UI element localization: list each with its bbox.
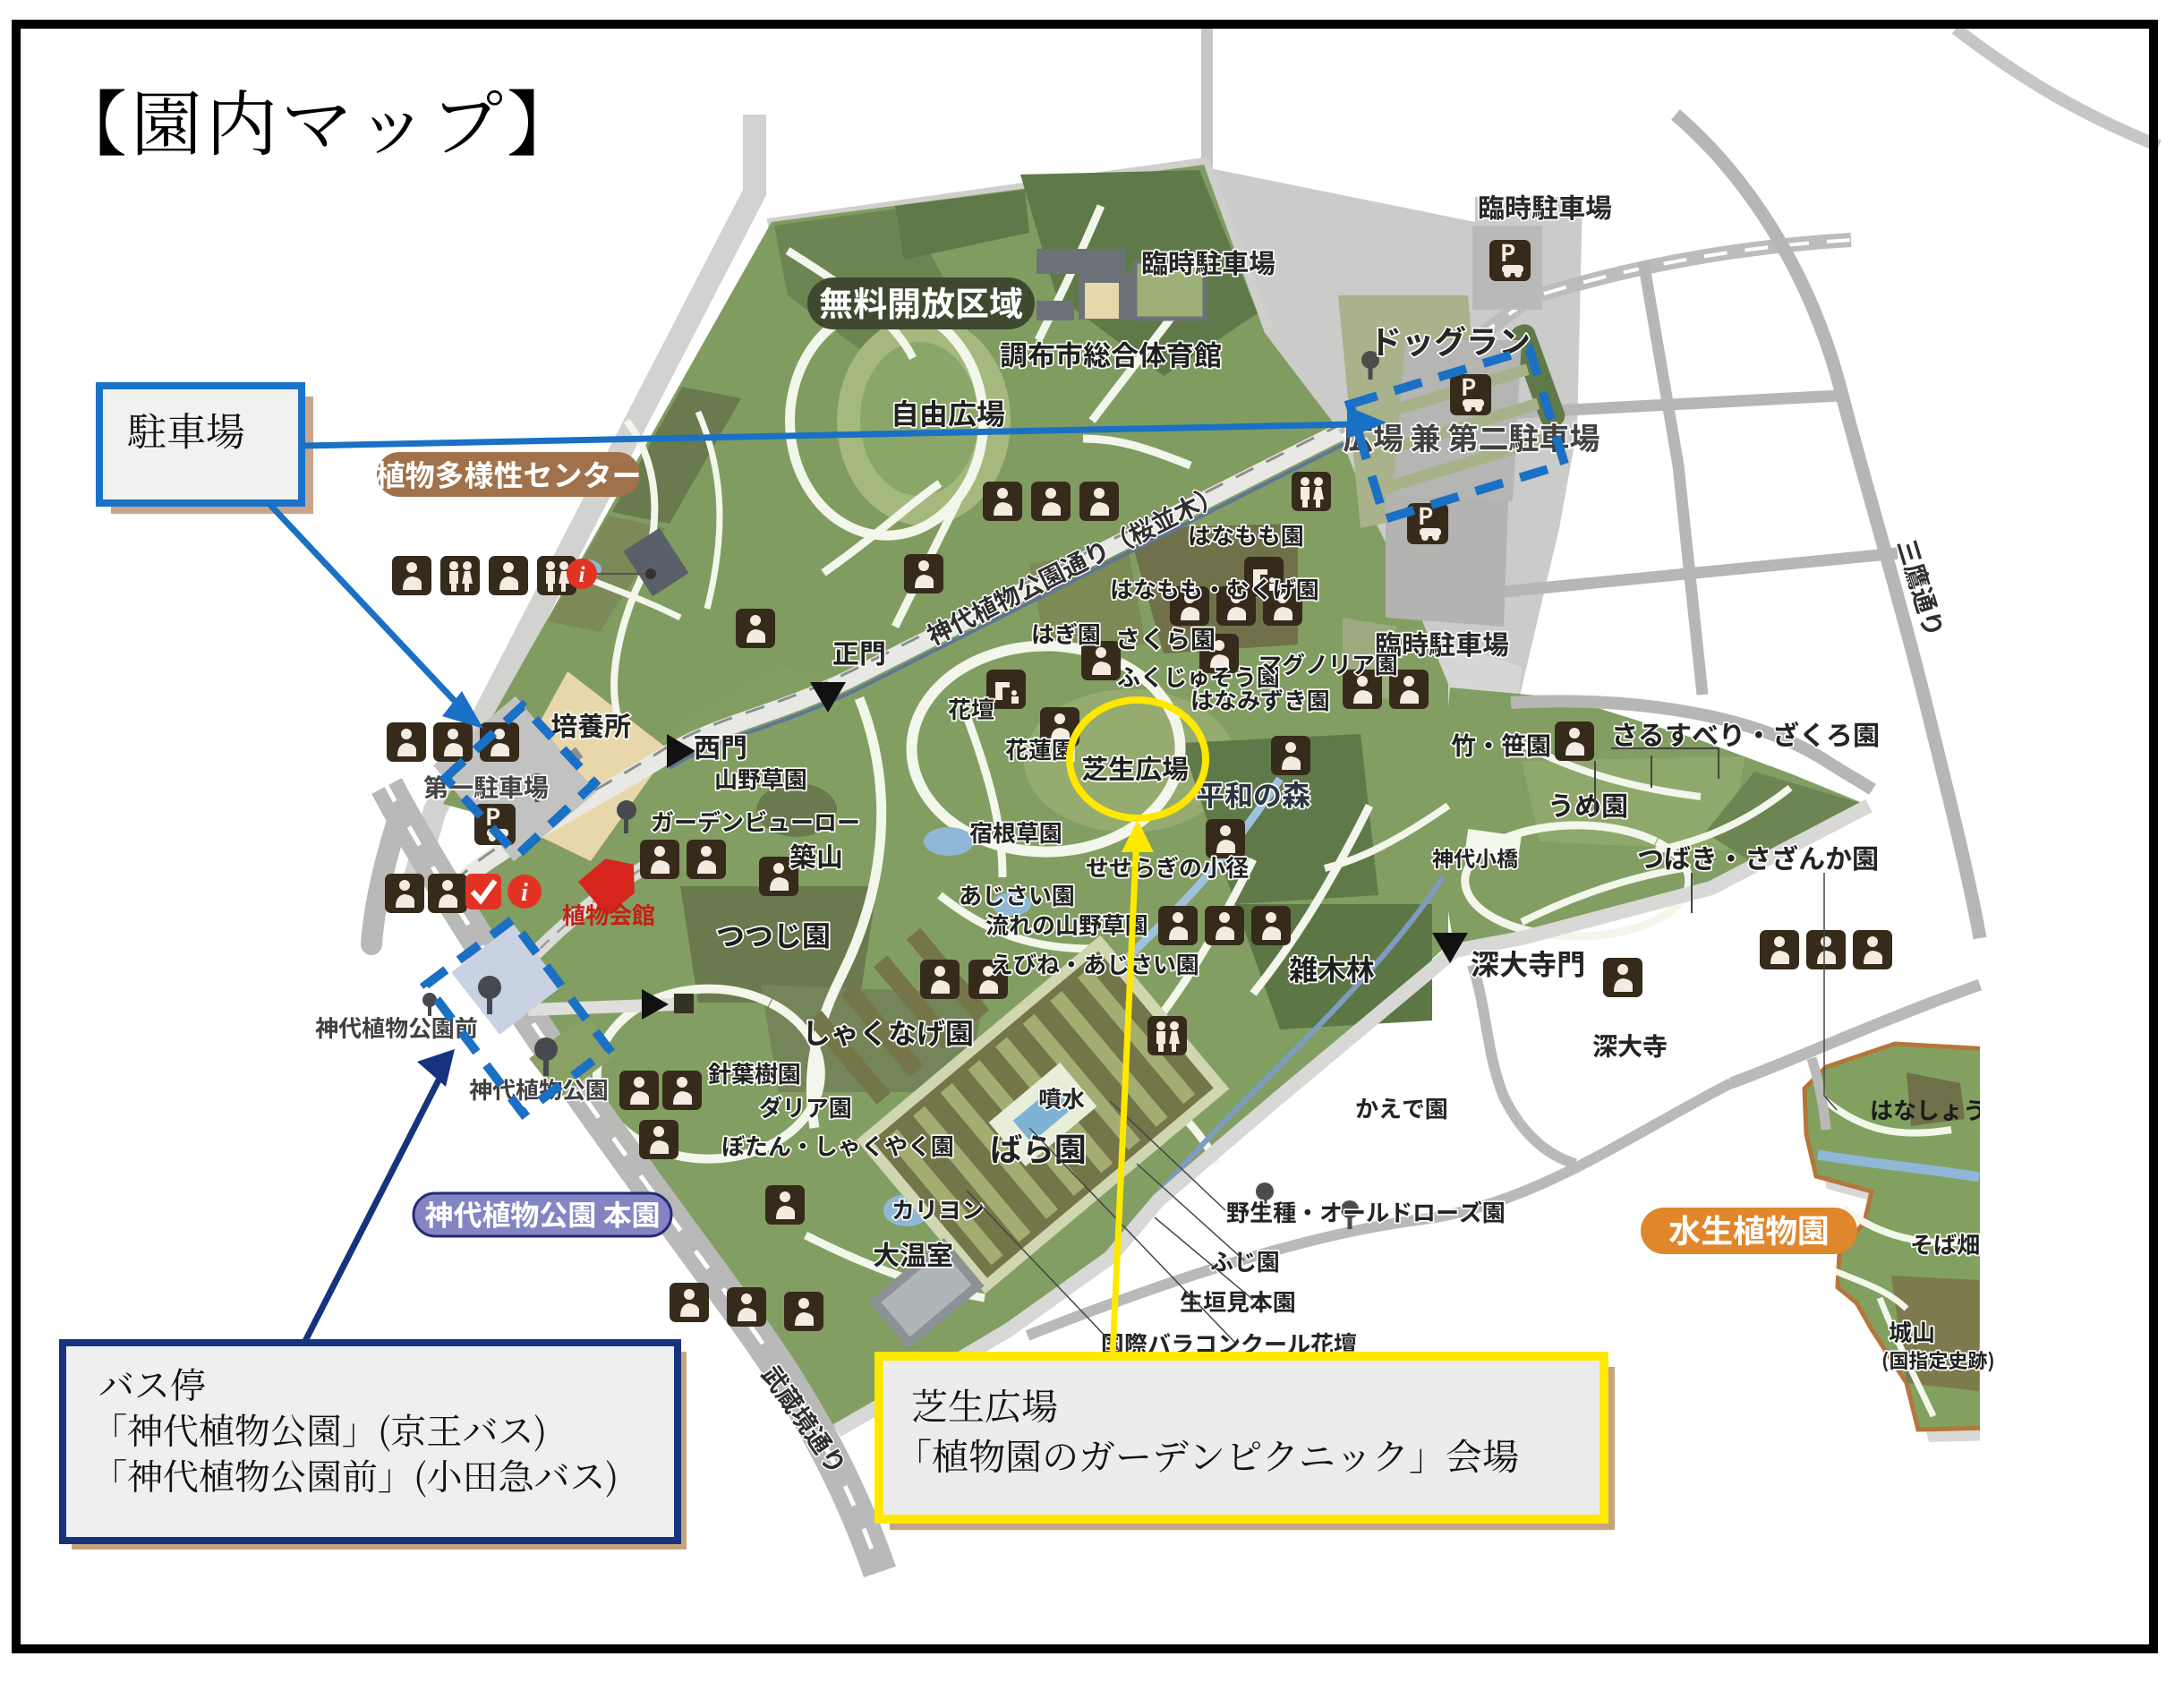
svg-text:花蓮園: 花蓮園	[1005, 732, 1075, 765]
svg-text:西門: 西門	[694, 726, 747, 765]
svg-text:「神代植物公園」(京王バス): 「神代植物公園」(京王バス)	[91, 1404, 547, 1455]
svg-text:はぎ園: はぎ園	[1031, 617, 1101, 650]
svg-text:城山: 城山	[1889, 1315, 1935, 1348]
svg-text:調布市総合体育館: 調布市総合体育館	[1000, 333, 1222, 373]
svg-text:駐車場: 駐車場	[127, 400, 245, 457]
svg-text:芝生広場: 芝生広場	[1081, 747, 1189, 787]
svg-text:噴水: 噴水	[1038, 1081, 1085, 1114]
svg-text:山野草園: 山野草園	[714, 762, 807, 795]
svg-text:築山: 築山	[789, 835, 843, 875]
svg-text:神代小橋: 神代小橋	[1432, 841, 1518, 873]
svg-text:正門: 正門	[832, 632, 886, 671]
svg-text:かえで園: かえで園	[1355, 1091, 1448, 1124]
svg-text:神代植物公園: 神代植物公園	[468, 1072, 609, 1106]
svg-text:雑木林: 雑木林	[1289, 948, 1375, 989]
svg-text:自由広場: 自由広場	[891, 392, 1005, 433]
svg-text:無料開放区域: 無料開放区域	[819, 277, 1023, 326]
svg-text:せせらぎの小径: せせらぎの小径	[1086, 850, 1249, 884]
svg-text:うめ園: うめ園	[1548, 784, 1628, 824]
svg-text:ガーデンビューロー: ガーデンビューロー	[651, 805, 860, 838]
svg-text:生垣見本園: 生垣見本園	[1180, 1285, 1296, 1318]
svg-text:平和の森: 平和の森	[1196, 773, 1310, 815]
svg-text:つつじ園: つつじ園	[716, 914, 831, 955]
svg-text:あじさい園: あじさい園	[959, 878, 1075, 911]
svg-text:i: i	[521, 879, 528, 907]
svg-text:「神代植物公園前」(小田急バス): 「神代植物公園前」(小田急バス)	[91, 1449, 619, 1500]
svg-text:植物多様性センター: 植物多様性センター	[376, 452, 642, 495]
svg-text:水生植物園: 水生植物園	[1668, 1206, 1830, 1252]
svg-text:宿根草園: 宿根草園	[969, 815, 1062, 849]
svg-text:流れの山野草園: 流れの山野草園	[985, 908, 1148, 941]
svg-text:第一駐車場: 第一駐車場	[423, 769, 549, 805]
svg-text:竹・笹園: 竹・笹園	[1451, 727, 1551, 763]
svg-text:ダリア園: ダリア園	[759, 1090, 852, 1123]
svg-text:ぼたん・しゃくやく園: ぼたん・しゃくやく園	[721, 1129, 954, 1162]
svg-text:大温室: 大温室	[873, 1234, 953, 1273]
svg-text:臨時駐車場: 臨時駐車場	[1478, 186, 1612, 226]
svg-text:ばら園: ばら園	[990, 1124, 1087, 1171]
svg-text:植物会館: 植物会館	[562, 898, 655, 931]
svg-text:針葉樹園: 針葉樹園	[708, 1056, 801, 1089]
svg-text:さるすべり・ざくろ園: さるすべり・ざくろ園	[1611, 713, 1880, 753]
svg-text:さくら園: さくら園	[1115, 620, 1216, 656]
svg-text:深大寺: 深大寺	[1592, 1028, 1668, 1063]
svg-text:カリヨン: カリヨン	[892, 1192, 985, 1225]
svg-text:バス停: バス停	[98, 1358, 206, 1409]
svg-text:(国指定史跡): (国指定史跡)	[1881, 1345, 1995, 1374]
svg-text:しゃくなげ園: しゃくなげ園	[802, 1012, 974, 1053]
svg-text:はなもも・むくげ園: はなもも・むくげ園	[1110, 572, 1319, 605]
svg-text:神代植物公園 本園: 神代植物公園 本園	[424, 1193, 660, 1234]
svg-text:花壇: 花壇	[948, 692, 994, 725]
svg-text:えびね・あじさい園: えびね・あじさい園	[990, 947, 1199, 980]
svg-text:i: i	[579, 563, 585, 587]
svg-text:はなもも園: はなもも園	[1188, 518, 1304, 551]
svg-text:はなみずき園: はなみずき園	[1190, 683, 1330, 716]
svg-text:マグノリア園: マグノリア園	[1258, 647, 1398, 680]
svg-text:深大寺門: 深大寺門	[1471, 943, 1585, 984]
svg-text:「植物園のガーデンピクニック」会場: 「植物園のガーデンピクニック」会場	[895, 1428, 1519, 1481]
svg-text:そば畑: そば畑	[1910, 1227, 1980, 1260]
svg-text:芝生広場: 芝生広場	[911, 1378, 1058, 1430]
svg-text:【園内マップ】: 【園内マップ】	[55, 67, 582, 170]
svg-text:培養所: 培養所	[550, 704, 631, 744]
svg-text:臨時駐車場: 臨時駐車場	[1141, 242, 1275, 281]
svg-text:野生種・オールドローズ園: 野生種・オールドローズ園	[1226, 1195, 1506, 1228]
svg-text:つばき・さざんか園: つばき・さざんか園	[1637, 837, 1879, 876]
